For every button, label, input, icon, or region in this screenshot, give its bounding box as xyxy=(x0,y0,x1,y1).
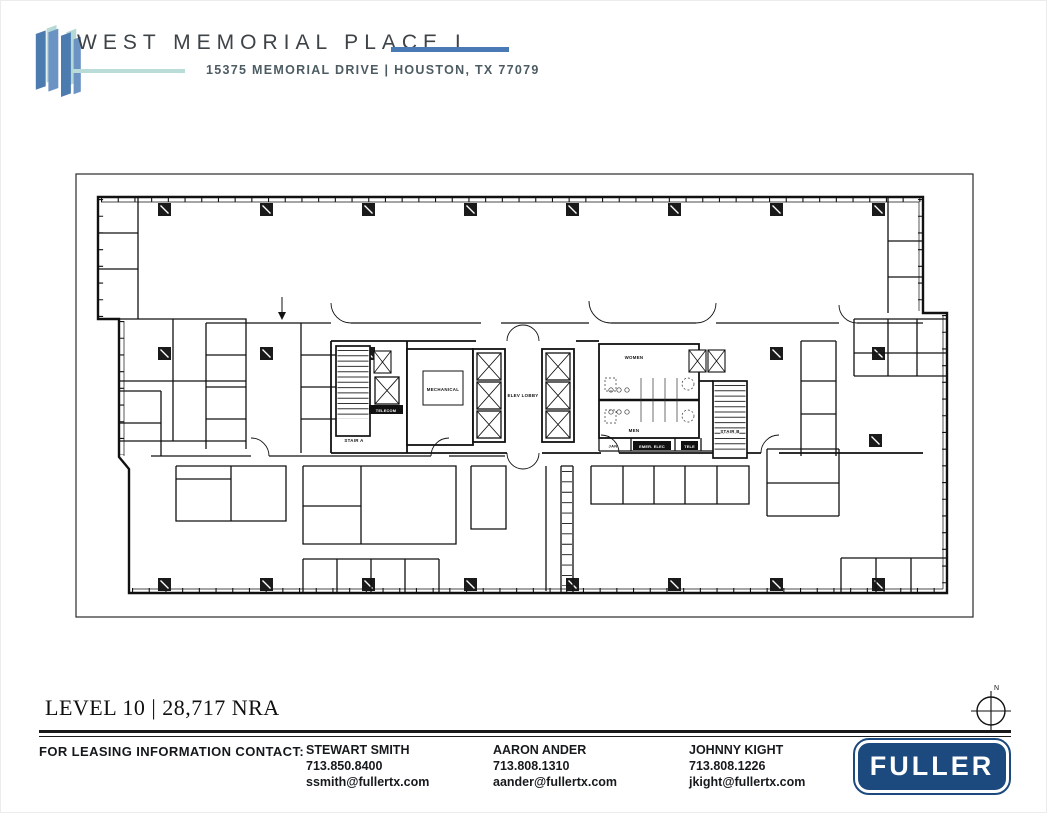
footer-rule-thick xyxy=(39,730,1011,733)
mechanical-room: MECHANICAL xyxy=(407,349,473,445)
telecom-room: TELECOM xyxy=(369,405,403,414)
contact-name: JOHNNY KIGHT xyxy=(689,742,805,758)
level-label: LEVEL 10 | 28,717 NRA xyxy=(45,695,280,721)
contact-card: JOHNNY KIGHT 713.808.1226 jkight@fullert… xyxy=(689,742,805,790)
elev-lobby-label: ELEV LOBBY xyxy=(507,393,538,398)
freight-elevator-icon xyxy=(375,377,399,404)
shaft-icon xyxy=(689,350,706,372)
telecom-label: TELECOM xyxy=(376,408,396,413)
shaft-icon xyxy=(708,350,725,372)
contact-heading: FOR LEASING INFORMATION CONTACT: xyxy=(39,744,304,759)
contact-card: AARON ANDER 713.808.1310 aander@fullertx… xyxy=(493,742,617,790)
address-accent-rule xyxy=(73,69,185,73)
footer-rule-thin xyxy=(39,736,1011,737)
building-address: 15375 MEMORIAL DRIVE | HOUSTON, TX 77079 xyxy=(206,63,540,77)
mechanical-label: MECHANICAL xyxy=(427,387,460,392)
floor-plan: STAIR A TELECOM MECHANICAL ELEV LOBBY xyxy=(75,173,975,619)
men-label: MEN xyxy=(629,428,640,433)
contact-email-link[interactable]: ssmith@fullertx.com xyxy=(306,774,429,790)
contact-name: AARON ANDER xyxy=(493,742,617,758)
stair-b: STAIR B xyxy=(713,381,747,458)
fuller-logo-text: FULLER xyxy=(858,743,1006,790)
tele-label: TELE xyxy=(684,444,695,449)
compass-icon: N xyxy=(963,681,1019,737)
service-shaft-icon xyxy=(374,351,391,373)
contact-phone: 713.808.1226 xyxy=(689,758,805,774)
contact-phone: 713.850.8400 xyxy=(306,758,429,774)
title-accent-rule xyxy=(391,47,509,52)
stair-b-label: STAIR B xyxy=(720,429,739,434)
stair-a: STAIR A xyxy=(336,346,370,443)
compass-north-label: N xyxy=(994,685,999,692)
stair-a-label: STAIR A xyxy=(344,438,364,443)
contact-name: STEWART SMITH xyxy=(306,742,429,758)
jan-label: JAN xyxy=(609,444,618,449)
flyer-page: WEST MEMORIAL PLACE I 15375 MEMORIAL DRI… xyxy=(0,0,1047,813)
women-label: WOMEN xyxy=(625,355,644,360)
emer-elec-label: EMER. ELEC xyxy=(639,444,665,449)
fuller-logo: FULLER xyxy=(853,738,1011,795)
contact-card: STEWART SMITH 713.850.8400 ssmith@fuller… xyxy=(306,742,429,790)
contact-email-link[interactable]: jkight@fullertx.com xyxy=(689,774,805,790)
floor-plan-drawing: STAIR A TELECOM MECHANICAL ELEV LOBBY xyxy=(75,173,975,619)
contact-phone: 713.808.1310 xyxy=(493,758,617,774)
contact-email-link[interactable]: aander@fullertx.com xyxy=(493,774,617,790)
